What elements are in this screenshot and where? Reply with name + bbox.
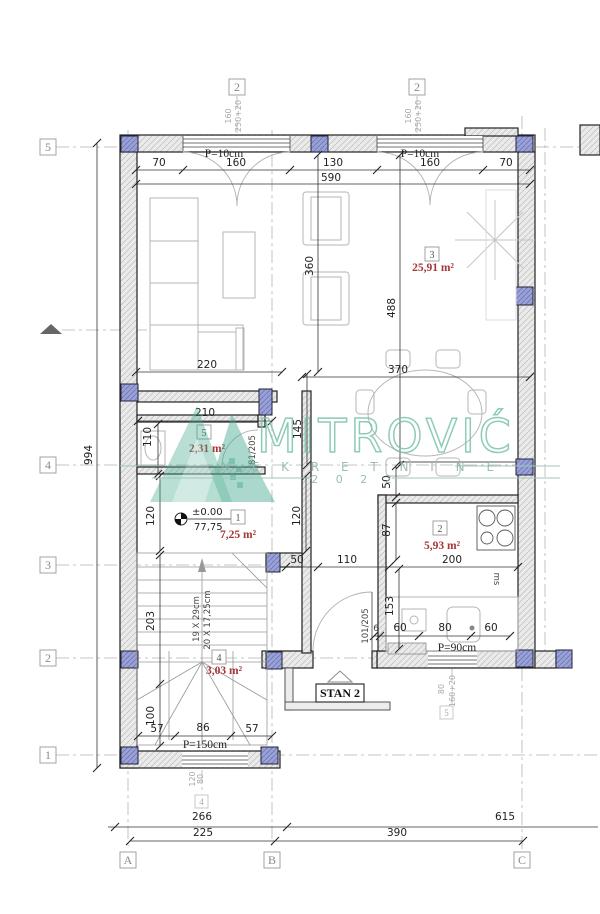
dimension-labels: 70 160 130 160 70 P=10cm P=10cm 590 994 … (83, 148, 515, 839)
dim-6: 6 (373, 624, 378, 634)
coffee-table (223, 232, 255, 298)
room-2-num: 2 (438, 524, 443, 535)
dim-360: 360 (304, 256, 316, 276)
sofa (150, 198, 244, 370)
dim-57a: 57 (150, 723, 163, 735)
stove (477, 506, 515, 550)
dim-120b: 120 (291, 506, 303, 526)
dim-top-70a: 70 (152, 157, 165, 169)
unit-name: STAN 2 (320, 686, 360, 700)
armchair-2 (303, 272, 349, 325)
dim-203: 203 (145, 611, 157, 631)
window-tag-top-h: 250+20 (234, 100, 243, 132)
dim-57b: 57 (245, 723, 258, 735)
plan-svg: 70 160 130 160 70 P=10cm P=10cm 590 994 … (0, 0, 600, 914)
north-arrow-icon (40, 324, 62, 334)
dim-110-mid: 110 (337, 554, 357, 566)
dim-590: 590 (321, 172, 341, 184)
dim-225: 225 (193, 827, 213, 839)
room-1-num: 1 (236, 513, 241, 524)
aux-marker-5: 5 (444, 708, 449, 718)
dim-615: 615 (495, 811, 515, 823)
window-tag-top-w: 160 (224, 108, 233, 123)
window-tag-top2-w: 160 (404, 108, 413, 123)
armchair-1 (303, 192, 349, 245)
dim-top-70b: 70 (499, 157, 512, 169)
grid-row-2: 2 (45, 651, 51, 665)
parapet-kitchen: P=90cm (438, 642, 476, 654)
dim-994: 994 (83, 445, 95, 465)
window-tag-top2-h: 250+20 (414, 100, 423, 132)
floor-plan-drawing: 70 160 130 160 70 P=10cm P=10cm 590 994 … (0, 0, 600, 914)
grid-col-c: C (518, 853, 526, 867)
dim-220: 220 (197, 359, 217, 371)
room-4-num: 4 (217, 653, 222, 664)
watermark-name: MITROVIĆ (257, 409, 515, 463)
room-2-area: 5,93 m² (424, 540, 461, 552)
grid-row-4: 4 (45, 458, 51, 472)
dim-120a: 120 (145, 506, 157, 526)
washing-machine (388, 643, 426, 654)
window-tag-kitchen-w: 80 (437, 684, 446, 694)
dim-60b: 60 (484, 622, 497, 634)
dim-top-130: 130 (323, 157, 343, 169)
dim-488: 488 (386, 298, 398, 318)
dim-390: 390 (387, 827, 407, 839)
aux-marker-4: 4 (199, 797, 204, 807)
grid-row-1: 1 (45, 748, 51, 762)
room-3-num: 3 (430, 250, 435, 261)
grid-top-2a: 2 (234, 80, 240, 94)
level-value: 77,75 (194, 522, 223, 533)
dim-370: 370 (388, 364, 408, 376)
unit-label: STAN 2 (316, 671, 364, 702)
dim-266: 266 (192, 811, 212, 823)
watermark-year: 2 0 2 2 (311, 473, 398, 486)
room-1-area: 7,25 m² (220, 529, 257, 541)
dim-60a: 60 (393, 622, 406, 634)
grid-row-5: 5 (45, 140, 51, 154)
appliance-tag-ms: ms (491, 573, 501, 586)
dim-153: 153 (384, 596, 396, 616)
parapet-top-left: P=10cm (205, 148, 243, 160)
dim-86: 86 (196, 722, 210, 734)
parapet-top-right: P=10cm (401, 148, 439, 160)
window-tag-bottom-h: 80 (196, 774, 205, 784)
dim-87: 87 (381, 523, 393, 536)
dim-110-wc: 110 (142, 427, 154, 447)
stair-riser-note: 20 X 17,25cm (203, 590, 213, 649)
level-datum: ±0.00 (192, 507, 223, 518)
dim-200: 200 (442, 554, 462, 566)
grid-row-3: 3 (45, 558, 51, 572)
dim-50-mid: 50 (290, 554, 303, 566)
grid-top-2b: 2 (414, 80, 420, 94)
room-4-area: 3,03 m² (206, 665, 243, 677)
window-kitchen (428, 652, 477, 667)
window-tag-kitchen-h: 160+20 (448, 675, 457, 707)
grid-col-a: A (124, 853, 133, 867)
parapet-bottom: P=150cm (183, 739, 227, 751)
window-bottom (182, 752, 248, 767)
door-tag-2: 101/205 (361, 608, 371, 643)
dim-80: 80 (438, 622, 451, 634)
watermark-tagline: N E K R E T N I N E (221, 460, 503, 474)
stair-tread-note: 19 X 29cm (192, 596, 202, 642)
room-3-area: 25,91 m² (412, 262, 454, 274)
grid-col-b: B (268, 853, 276, 867)
